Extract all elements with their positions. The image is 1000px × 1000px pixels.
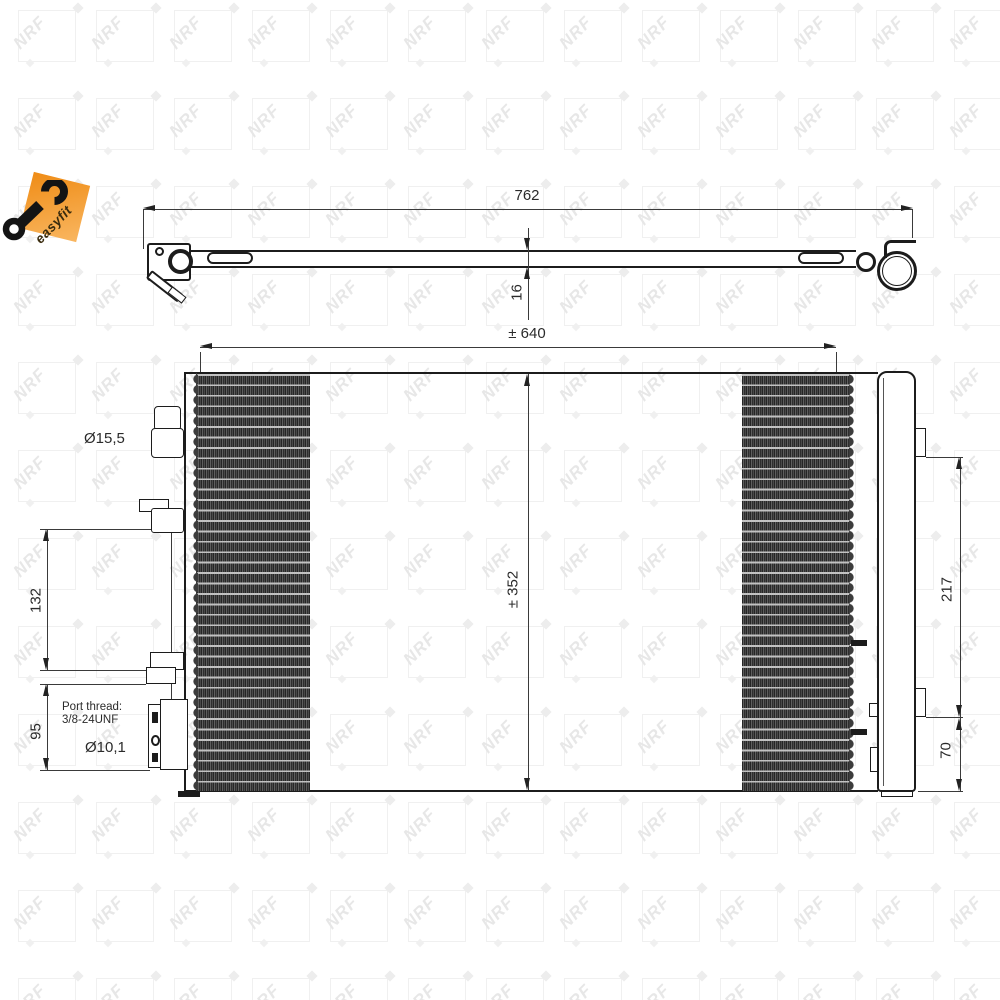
dim-640-arrow-right <box>824 343 836 349</box>
lower-bracket-arm <box>146 667 176 684</box>
nrf-watermark: NRF <box>720 978 778 1000</box>
nrf-watermark: NRF <box>408 538 466 590</box>
nrf-watermark: NRF <box>642 538 700 590</box>
nrf-watermark: NRF <box>564 450 622 502</box>
nrf-watermark: NRF <box>954 890 1000 942</box>
nrf-watermark: NRF <box>564 714 622 766</box>
nrf-watermark: NRF <box>642 450 700 502</box>
dim-132-arrow-top <box>43 529 49 541</box>
right-edge-pin-upper <box>851 640 867 646</box>
nrf-watermark: NRF <box>408 802 466 854</box>
nrf-watermark: NRF <box>954 362 1000 414</box>
dim-640-ext-right <box>836 352 837 372</box>
sideview-right-small-ring <box>856 252 876 272</box>
nrf-watermark: NRF <box>408 274 466 326</box>
dim-640-arrow-left <box>200 343 212 349</box>
nrf-watermark: NRF <box>798 978 856 1000</box>
bottom-port-hole-2 <box>151 735 160 746</box>
dim-217-label: 217 <box>939 568 956 612</box>
nrf-watermark: NRF <box>564 802 622 854</box>
nrf-watermark: NRF <box>408 10 466 62</box>
technical-drawing-canvas: NRFNRFNRFNRFNRFNRFNRFNRFNRFNRFNRFNRFNRFN… <box>0 0 1000 1000</box>
nrf-watermark: NRF <box>720 802 778 854</box>
nrf-watermark: NRF <box>642 626 700 678</box>
nrf-watermark: NRF <box>564 186 622 238</box>
dim-95-label: 95 <box>28 714 45 750</box>
nrf-watermark: NRF <box>876 10 934 62</box>
dim-70-arrow-bottom <box>956 779 962 791</box>
nrf-watermark: NRF <box>954 978 1000 1000</box>
dim-217-arrow-top <box>956 457 962 469</box>
nrf-watermark: NRF <box>18 450 76 502</box>
nrf-watermark: NRF <box>642 802 700 854</box>
nrf-watermark: NRF <box>408 890 466 942</box>
fin-band-left <box>197 374 310 791</box>
port-thread-label: Port thread: <box>62 701 122 714</box>
nrf-watermark: NRF <box>564 274 622 326</box>
bottom-port-diameter-label: Ø10,1 <box>85 739 126 756</box>
nrf-watermark: NRF <box>486 802 544 854</box>
sideview-pipe-hook <box>884 240 916 258</box>
nrf-watermark: NRF <box>564 978 622 1000</box>
nrf-watermark: NRF <box>642 186 700 238</box>
nrf-watermark: NRF <box>876 186 934 238</box>
dim-640-label: ± 640 <box>494 325 560 342</box>
nrf-watermark: NRF <box>174 186 232 238</box>
dim-132-arrow-bottom <box>43 658 49 670</box>
nrf-watermark: NRF <box>486 626 544 678</box>
dim-132-ext-bottom <box>40 670 148 671</box>
dim-70-ext-bottom <box>918 791 963 792</box>
pipe-line-upper <box>171 533 172 653</box>
drier-foot <box>881 791 913 797</box>
nrf-watermark: NRF <box>96 274 154 326</box>
nrf-watermark: NRF <box>486 450 544 502</box>
dim-217-arrow-bottom <box>956 705 962 717</box>
nrf-watermark: NRF <box>954 802 1000 854</box>
nrf-watermark: NRF <box>564 10 622 62</box>
sideview-right-big-ring-inner <box>882 256 912 286</box>
nrf-watermark: NRF <box>798 186 856 238</box>
dim-95-ext-bottom <box>40 770 150 771</box>
dim-132-line <box>47 529 48 670</box>
dim-762-line <box>143 209 913 210</box>
nrf-watermark: NRF <box>798 802 856 854</box>
dim-132-ext-top <box>40 529 152 530</box>
middle-bracket-body <box>151 508 184 533</box>
right-edge-pin-lower <box>851 729 867 735</box>
sideview-slot-right <box>798 252 844 264</box>
nrf-watermark: NRF <box>408 362 466 414</box>
dim-762-arrow-left <box>143 205 155 211</box>
nrf-watermark: NRF <box>876 890 934 942</box>
nrf-watermark: NRF <box>174 890 232 942</box>
sideview-left-small-hole <box>155 247 164 256</box>
nrf-watermark: NRF <box>876 98 934 150</box>
nrf-watermark: NRF <box>330 450 388 502</box>
nrf-watermark: NRF <box>798 98 856 150</box>
nrf-watermark: NRF <box>486 10 544 62</box>
nrf-watermark: NRF <box>96 98 154 150</box>
nrf-watermark: NRF <box>18 978 76 1000</box>
nrf-watermark: NRF <box>96 978 154 1000</box>
nrf-watermark: NRF <box>486 714 544 766</box>
bottom-port-hole-1 <box>152 712 158 723</box>
nrf-watermark: NRF <box>564 890 622 942</box>
dim-95-arrow-top <box>43 684 49 696</box>
nrf-watermark: NRF <box>876 978 934 1000</box>
nrf-watermark: NRF <box>330 802 388 854</box>
nrf-watermark: NRF <box>642 890 700 942</box>
dim-95-ext-top <box>40 684 146 685</box>
dim-70-arrow-top <box>956 718 962 730</box>
nrf-watermark: NRF <box>798 274 856 326</box>
nrf-watermark: NRF <box>330 890 388 942</box>
dim-16-arrow-top <box>524 238 530 250</box>
dim-640-ext-left <box>200 352 201 372</box>
nrf-watermark: NRF <box>330 362 388 414</box>
nrf-watermark: NRF <box>564 362 622 414</box>
dim-762-label: 762 <box>500 187 554 204</box>
dim-762-ext-left <box>143 209 144 249</box>
nrf-watermark: NRF <box>954 274 1000 326</box>
nrf-watermark: NRF <box>330 10 388 62</box>
nrf-watermark: NRF <box>486 890 544 942</box>
bottom-port-block <box>160 699 188 770</box>
nrf-watermark: NRF <box>798 10 856 62</box>
nrf-watermark: NRF <box>798 890 856 942</box>
nrf-watermark: NRF <box>720 10 778 62</box>
nrf-watermark: NRF <box>252 10 310 62</box>
dim-217-line <box>960 457 961 717</box>
nrf-watermark: NRF <box>720 890 778 942</box>
dim-16-label: 16 <box>509 273 526 313</box>
nrf-watermark: NRF <box>18 98 76 150</box>
nrf-watermark: NRF <box>18 274 76 326</box>
nrf-watermark: NRF <box>486 978 544 1000</box>
nrf-watermark: NRF <box>408 626 466 678</box>
nrf-watermark: NRF <box>330 538 388 590</box>
dim-352-arrow-bottom <box>524 778 530 790</box>
dim-352-arrow-top <box>524 374 530 386</box>
nrf-watermark: NRF <box>330 714 388 766</box>
drier-inner-line <box>883 378 884 786</box>
nrf-watermark: NRF <box>330 98 388 150</box>
nrf-watermark: NRF <box>720 186 778 238</box>
top-port-diameter-label: Ø15,5 <box>84 430 125 447</box>
nrf-watermark: NRF <box>486 98 544 150</box>
sideview-bar-bottom-edge <box>150 266 856 268</box>
nrf-watermark: NRF <box>642 274 700 326</box>
nrf-watermark: NRF <box>174 802 232 854</box>
nrf-watermark: NRF <box>642 10 700 62</box>
nrf-watermark: NRF <box>330 978 388 1000</box>
nrf-watermark: NRF <box>954 186 1000 238</box>
nrf-watermark: NRF <box>330 274 388 326</box>
nrf-watermark: NRF <box>18 10 76 62</box>
dim-640-line <box>200 347 836 348</box>
dim-132-label: 132 <box>28 578 45 624</box>
bottom-port-hole-3 <box>152 753 158 762</box>
nrf-watermark: NRF <box>408 98 466 150</box>
dim-762-ext-right <box>912 209 913 238</box>
nrf-watermark: NRF <box>642 714 700 766</box>
nrf-watermark: NRF <box>252 802 310 854</box>
nrf-watermark: NRF <box>96 538 154 590</box>
nrf-watermark: NRF <box>18 802 76 854</box>
nrf-watermark: NRF <box>642 362 700 414</box>
nrf-watermark: NRF <box>720 274 778 326</box>
nrf-watermark: NRF <box>96 362 154 414</box>
nrf-watermark: NRF <box>174 10 232 62</box>
dim-95-arrow-bottom <box>43 758 49 770</box>
sideview-left-port-ring <box>168 249 193 274</box>
nrf-watermark: NRF <box>564 626 622 678</box>
nrf-watermark: NRF <box>876 802 934 854</box>
nrf-watermark: NRF <box>252 98 310 150</box>
nrf-watermark: NRF <box>252 186 310 238</box>
nrf-watermark: NRF <box>174 978 232 1000</box>
nrf-watermark: NRF <box>18 362 76 414</box>
port-thread-value: 3/8-24UNF <box>62 714 118 727</box>
nrf-watermark: NRF <box>174 98 232 150</box>
top-port-fitting-lower <box>151 428 184 458</box>
left-plate-foot <box>178 791 200 797</box>
nrf-watermark: NRF <box>408 186 466 238</box>
sideview-slot-left <box>207 252 253 264</box>
nrf-watermark: NRF <box>330 186 388 238</box>
sideview-bar-top-edge <box>150 250 856 252</box>
nrf-watermark: NRF <box>18 890 76 942</box>
dim-70-label: 70 <box>938 731 955 771</box>
dim-762-arrow-right <box>901 205 913 211</box>
nrf-watermark: NRF <box>252 274 310 326</box>
nrf-watermark: NRF <box>96 802 154 854</box>
nrf-watermark: NRF <box>954 10 1000 62</box>
dim-352-label: ± 352 <box>505 555 522 625</box>
nrf-watermark: NRF <box>96 450 154 502</box>
nrf-watermark: NRF <box>720 98 778 150</box>
nrf-watermark: NRF <box>642 98 700 150</box>
nrf-watermark: NRF <box>954 98 1000 150</box>
nrf-watermark: NRF <box>330 626 388 678</box>
nrf-watermark: NRF <box>408 978 466 1000</box>
nrf-watermark: NRF <box>486 362 544 414</box>
nrf-watermark: NRF <box>408 450 466 502</box>
nrf-watermark: NRF <box>408 714 466 766</box>
nrf-watermark: NRF <box>252 890 310 942</box>
nrf-watermark: NRF <box>96 890 154 942</box>
fin-band-right <box>742 374 850 791</box>
nrf-watermark: NRF <box>642 978 700 1000</box>
nrf-watermark: NRF <box>564 538 622 590</box>
nrf-watermark: NRF <box>564 98 622 150</box>
nrf-watermark: NRF <box>96 10 154 62</box>
fin-teeth-left <box>188 374 198 791</box>
dim-352-line <box>528 374 529 790</box>
easyfit-logo: easyfit <box>2 168 112 278</box>
nrf-watermark: NRF <box>252 978 310 1000</box>
